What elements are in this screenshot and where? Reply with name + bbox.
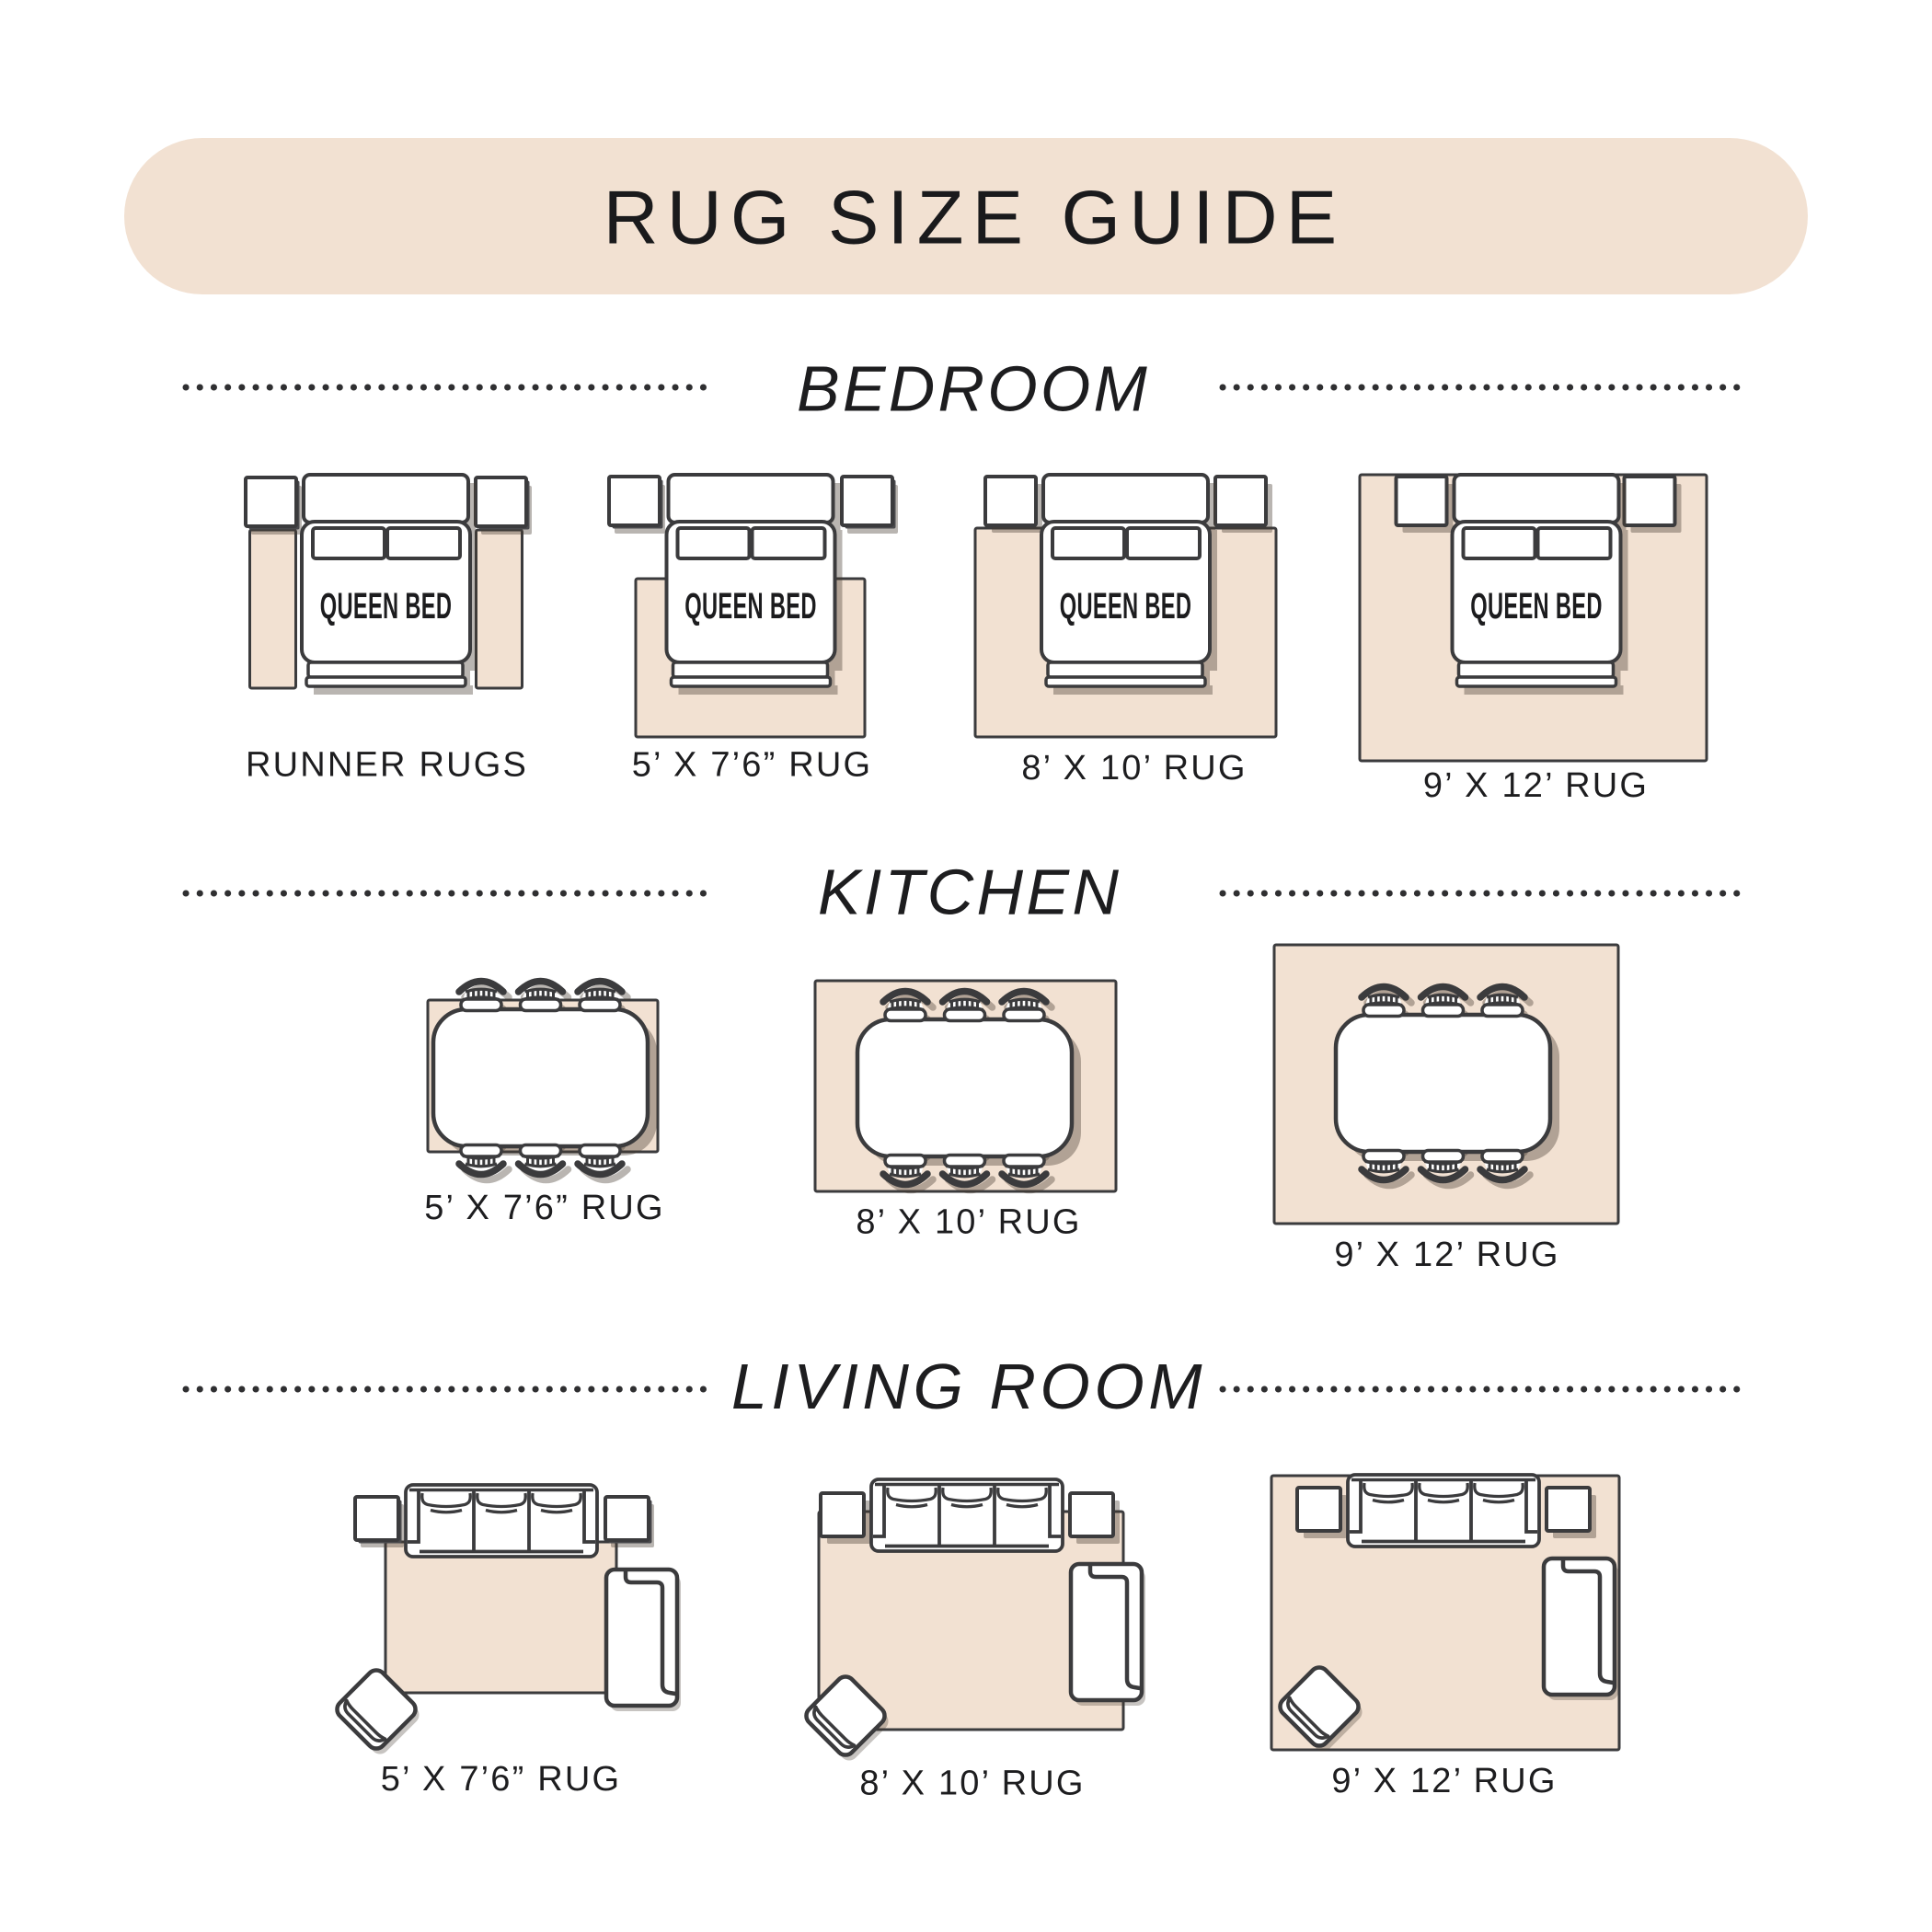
svg-text:9’ X 12’ RUG: 9’ X 12’ RUG — [1331, 1762, 1557, 1800]
svg-text:QUEEN BED: QUEEN BED — [320, 586, 453, 627]
svg-text:5’ X 7’6” RUG: 5’ X 7’6” RUG — [424, 1189, 665, 1227]
svg-text:8’ X 10’ RUG: 8’ X 10’ RUG — [1021, 749, 1247, 788]
svg-text:RUNNER RUGS: RUNNER RUGS — [246, 746, 528, 785]
svg-text:8’ X 10’ RUG: 8’ X 10’ RUG — [856, 1203, 1081, 1242]
svg-text:QUEEN BED: QUEEN BED — [684, 586, 817, 627]
svg-text:9’ X 12’ RUG: 9’ X 12’ RUG — [1423, 766, 1649, 805]
svg-text:RUG SIZE GUIDE: RUG SIZE GUIDE — [604, 175, 1346, 260]
svg-text:KITCHEN: KITCHEN — [818, 857, 1121, 928]
svg-text:QUEEN BED: QUEEN BED — [1060, 586, 1192, 627]
svg-text:QUEEN BED: QUEEN BED — [1470, 586, 1603, 627]
svg-text:5’ X 7’6” RUG: 5’ X 7’6” RUG — [632, 746, 873, 785]
svg-text:9’ X 12’ RUG: 9’ X 12’ RUG — [1334, 1236, 1559, 1274]
svg-text:BEDROOM: BEDROOM — [797, 353, 1150, 425]
svg-text:LIVING ROOM: LIVING ROOM — [731, 1351, 1206, 1422]
svg-text:8’ X 10’ RUG: 8’ X 10’ RUG — [859, 1765, 1085, 1803]
svg-text:5’ X 7’6” RUG: 5’ X 7’6” RUG — [381, 1760, 622, 1799]
